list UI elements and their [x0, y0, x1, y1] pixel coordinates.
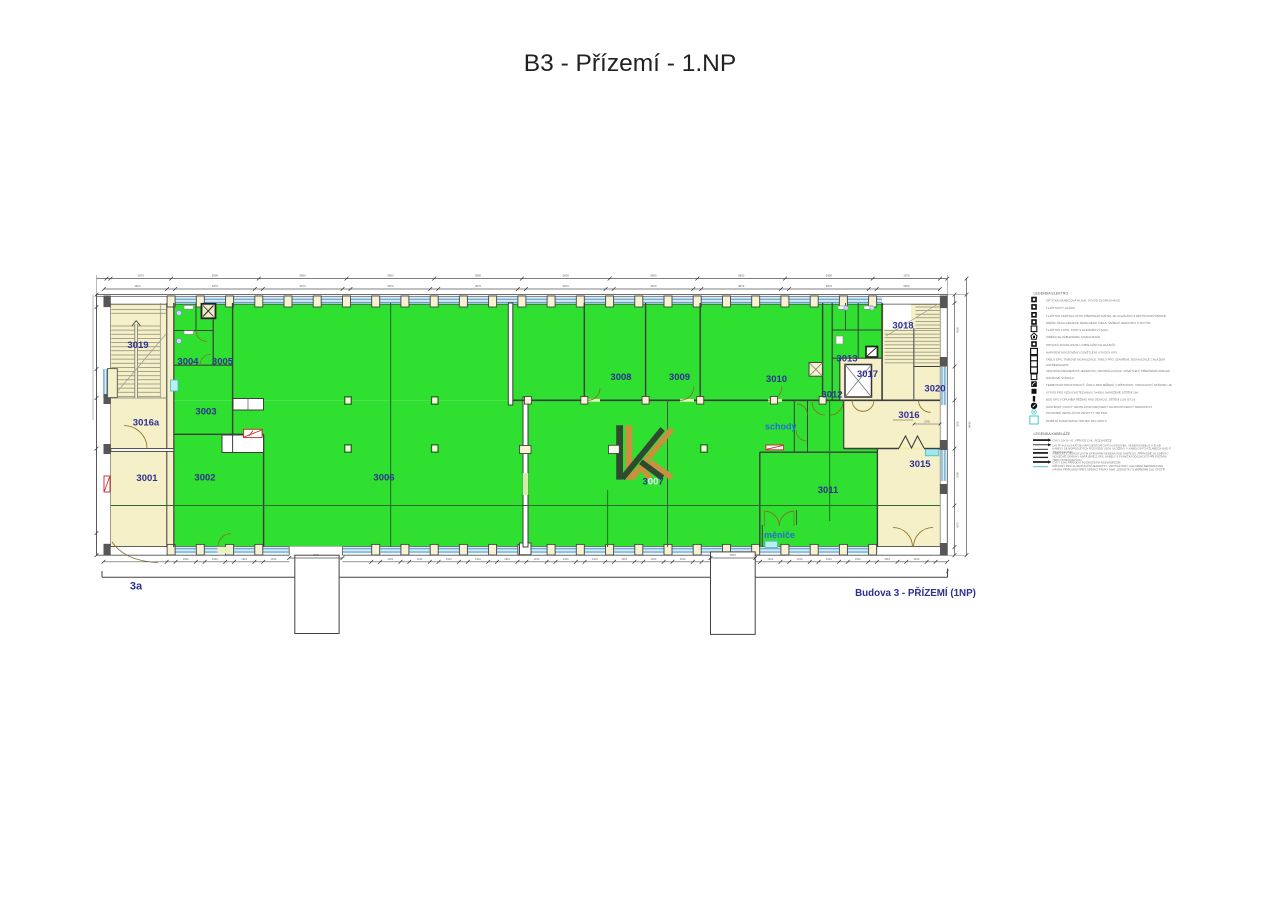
svg-text:1910: 1910 [767, 557, 773, 561]
svg-text:4870: 4870 [387, 284, 394, 288]
svg-text:4870: 4870 [299, 284, 306, 288]
svg-text:LEGENDA ELEKTRO: LEGENDA ELEKTRO [1034, 292, 1069, 296]
svg-text:1910: 1910 [212, 557, 218, 561]
svg-text:5800: 5800 [475, 273, 482, 277]
svg-text:3018: 3018 [892, 321, 913, 332]
svg-text:MOBILNÍ KLIMATIZACE TROTEC PAC: MOBILNÍ KLIMATIZACE TROTEC PAC 3200 S [1046, 419, 1107, 423]
svg-text:1910: 1910 [183, 557, 189, 561]
svg-text:1910: 1910 [651, 557, 657, 561]
svg-text:4870: 4870 [903, 284, 910, 288]
svg-text:3006: 3006 [373, 473, 394, 484]
svg-text:TLAČÍTKO CENTRAL STOP, PŘEPÍNÁ: TLAČÍTKO CENTRAL STOP, PŘEPÍNÁNÍ SVĚTEL … [1046, 313, 1166, 318]
svg-text:Budova 3 - PŘÍZEMÍ (1NP): Budova 3 - PŘÍZEMÍ (1NP) [855, 587, 976, 599]
svg-text:TABLO EPS, TÍSŇOVÉ SIGNALIZACE: TABLO EPS, TÍSŇOVÉ SIGNALIZACE, TABLO PR… [1046, 357, 1165, 362]
svg-text:3a: 3a [130, 581, 143, 593]
svg-text:4170: 4170 [956, 522, 960, 528]
svg-text:3010: 3010 [766, 374, 787, 385]
svg-text:BOD EPS V DRUHÉM RĚŽIMU NAD DE: BOD EPS V DRUHÉM RĚŽIMU NAD DESKOU, JIŠT… [1046, 397, 1136, 402]
svg-text:1910: 1910 [797, 557, 803, 561]
svg-text:1910: 1910 [563, 557, 569, 561]
svg-text:3011: 3011 [818, 485, 839, 496]
svg-text:NAPÁJENÍ NOUZOVÉHO OSVĚTLENÍ,: NAPÁJENÍ NOUZOVÉHO OSVĚTLENÍ, VÝVODY UPS [1046, 349, 1117, 354]
svg-text:CYKY 5J×16 +O., PŘÍVOD Z HL. R: CYKY 5J×16 +O., PŘÍVOD Z HL. ROZVADĚČE [1053, 438, 1112, 443]
svg-text:3007: 3007 [643, 477, 664, 488]
svg-text:1910: 1910 [914, 557, 920, 561]
svg-text:USTŘEDNA EPS: USTŘEDNA EPS [1046, 362, 1068, 367]
svg-text:3015: 3015 [909, 459, 931, 470]
svg-text:1910: 1910 [680, 557, 686, 561]
svg-text:1910: 1910 [621, 557, 627, 561]
svg-text:1910: 1910 [855, 557, 861, 561]
svg-text:1910: 1910 [592, 557, 598, 561]
svg-text:NÁSTĚNNÝ OSOVÝ VENTILÁTOR NAPO: NÁSTĚNNÝ OSOVÝ VENTILÁTOR NAPOJENÝ NA PR… [1046, 404, 1152, 409]
svg-text:3016a: 3016a [133, 418, 160, 429]
svg-text:schody: schody [765, 422, 797, 432]
svg-text:3005: 3005 [212, 357, 234, 368]
svg-text:OPTICKÁ KRABICOVÁ HLAVA, VÝVOD: OPTICKÁ KRABICOVÁ HLAVA, VÝVOD SVORKOVNI… [1046, 299, 1120, 303]
svg-text:1910: 1910 [241, 557, 247, 561]
svg-text:1910: 1910 [826, 557, 832, 561]
svg-text:3004: 3004 [177, 357, 199, 368]
svg-text:TERMOSTAT PROSTOROVÝ, ČIDLO PR: TERMOSTAT PROSTOROVÝ, ČIDLO PRO MĚŘENÍ V… [1046, 382, 1172, 387]
svg-text:1910: 1910 [271, 557, 277, 561]
svg-text:TLAČÍTKOVÝ HLÁSIČ: TLAČÍTKOVÝ HLÁSIČ [1046, 305, 1075, 310]
svg-text:1910: 1910 [504, 557, 510, 561]
svg-text:NÁVRH PŘIPOJENÍ PŘES SPÍNACÍ P: NÁVRH PŘIPOJENÍ PŘES SPÍNACÍ PRVKY MaR, … [1053, 466, 1165, 471]
svg-text:1910: 1910 [387, 557, 393, 561]
svg-text:3016: 3016 [898, 410, 919, 421]
svg-text:DRŽÁK ČIDLA HRANICE TEPELNÉHO: DRŽÁK ČIDLA HRANICE TEPELNÉHO ČIDLA, SNÍ… [1046, 320, 1151, 325]
svg-text:NOUZOVÉ SVÍTIDLO: NOUZOVÉ SVÍTIDLO [1046, 375, 1075, 380]
svg-text:3017: 3017 [857, 369, 878, 380]
svg-text:B3 - Přízemí - 1.NP: B3 - Přízemí - 1.NP [524, 50, 736, 77]
svg-text:CENTRÁLNÍ BATERIOVÁ JEDNOTKA,: CENTRÁLNÍ BATERIOVÁ JEDNOTKA, CENTRÁLA N… [1046, 368, 1170, 373]
svg-text:OPTICKÁ SIGNALIZACE U OBSLUŽNÝ: OPTICKÁ SIGNALIZACE U OBSLUŽNÝCH HLÁSIČŮ [1046, 342, 1115, 347]
svg-text:8970: 8970 [313, 553, 319, 557]
svg-text:1910: 1910 [417, 557, 423, 561]
svg-text:4870: 4870 [563, 284, 570, 288]
svg-text:14630: 14630 [968, 421, 972, 429]
svg-text:4870: 4870 [738, 284, 745, 288]
svg-text:1910: 1910 [884, 557, 890, 561]
svg-text:3001: 3001 [136, 473, 158, 484]
svg-text:SIRÉNA SE ZÁBLESKEM, SIGNALIZA: SIRÉNA SE ZÁBLESKEM, SIGNALIZACE [1046, 334, 1100, 339]
svg-text:3013: 3013 [836, 354, 857, 365]
svg-text:1910: 1910 [475, 557, 481, 561]
svg-text:5800: 5800 [826, 273, 833, 277]
svg-text:3870: 3870 [138, 273, 145, 277]
svg-text:TLAČÍTKO TOTAL STOP S HLÍDÁNÍM: TLAČÍTKO TOTAL STOP S HLÍDÁNÍM VÝTAHU [1046, 327, 1108, 332]
svg-text:1540: 1540 [924, 419, 930, 423]
svg-text:3530: 3530 [956, 421, 960, 427]
svg-text:VÝVOD PRO VZDUCHOTECHNIKU 3×40: VÝVOD PRO VZDUCHOTECHNIKU 3×400V, NAVRŽE… [1046, 389, 1138, 394]
svg-text:5800: 5800 [563, 273, 570, 277]
svg-text:3190: 3190 [956, 472, 960, 478]
svg-text:měniče: měniče [764, 530, 795, 540]
svg-text:3020: 3020 [924, 384, 945, 395]
svg-text:3008: 3008 [610, 372, 631, 383]
svg-text:POTRUBNÍ VENTILÁTOR VENTS TT 1: POTRUBNÍ VENTILÁTOR VENTS TT 150 PRO [1046, 411, 1108, 415]
svg-text:LEGENDA KABELÁŽE: LEGENDA KABELÁŽE [1034, 431, 1071, 436]
svg-text:5800: 5800 [299, 273, 306, 277]
svg-text:4870: 4870 [475, 284, 482, 288]
svg-text:4870: 4870 [650, 284, 657, 288]
svg-text:1910: 1910 [534, 557, 540, 561]
svg-text:5800: 5800 [387, 273, 394, 277]
svg-text:1870: 1870 [903, 273, 910, 277]
svg-text:3810: 3810 [134, 284, 141, 288]
svg-text:5800: 5800 [650, 273, 657, 277]
svg-text:3012: 3012 [821, 390, 842, 401]
svg-text:4130: 4130 [956, 327, 960, 333]
svg-text:5800: 5800 [738, 273, 745, 277]
svg-text:5800: 5800 [212, 273, 219, 277]
svg-text:3019: 3019 [127, 340, 148, 351]
svg-text:4870: 4870 [212, 284, 219, 288]
svg-text:3003: 3003 [195, 407, 216, 418]
svg-text:3002: 3002 [194, 473, 215, 484]
svg-text:8970: 8970 [730, 553, 736, 557]
svg-text:1910: 1910 [446, 557, 452, 561]
svg-text:4870: 4870 [826, 284, 833, 288]
svg-text:3009: 3009 [669, 372, 690, 383]
